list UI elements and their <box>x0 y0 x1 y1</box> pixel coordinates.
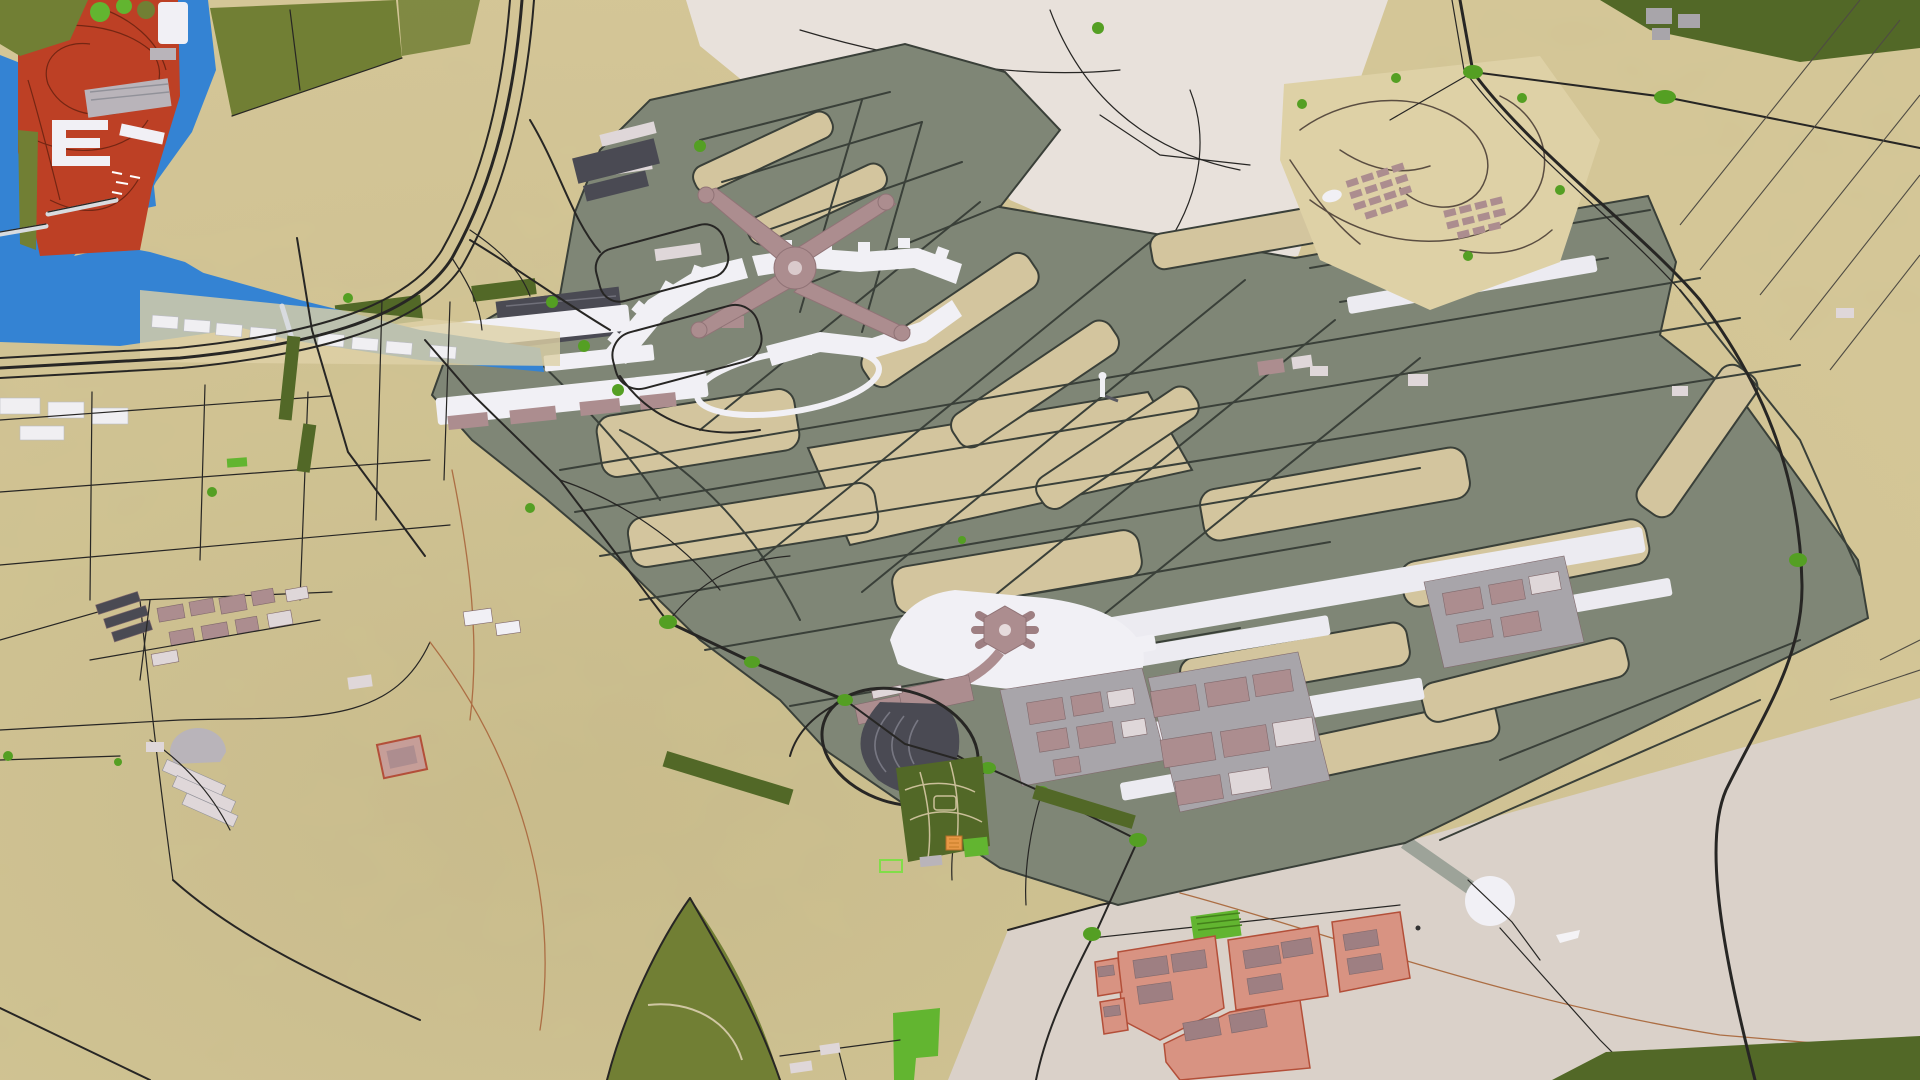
lighting-overlay <box>0 0 1920 1080</box>
map-viewport[interactable] <box>0 0 1920 1080</box>
aerial-map-render <box>0 0 1920 1080</box>
